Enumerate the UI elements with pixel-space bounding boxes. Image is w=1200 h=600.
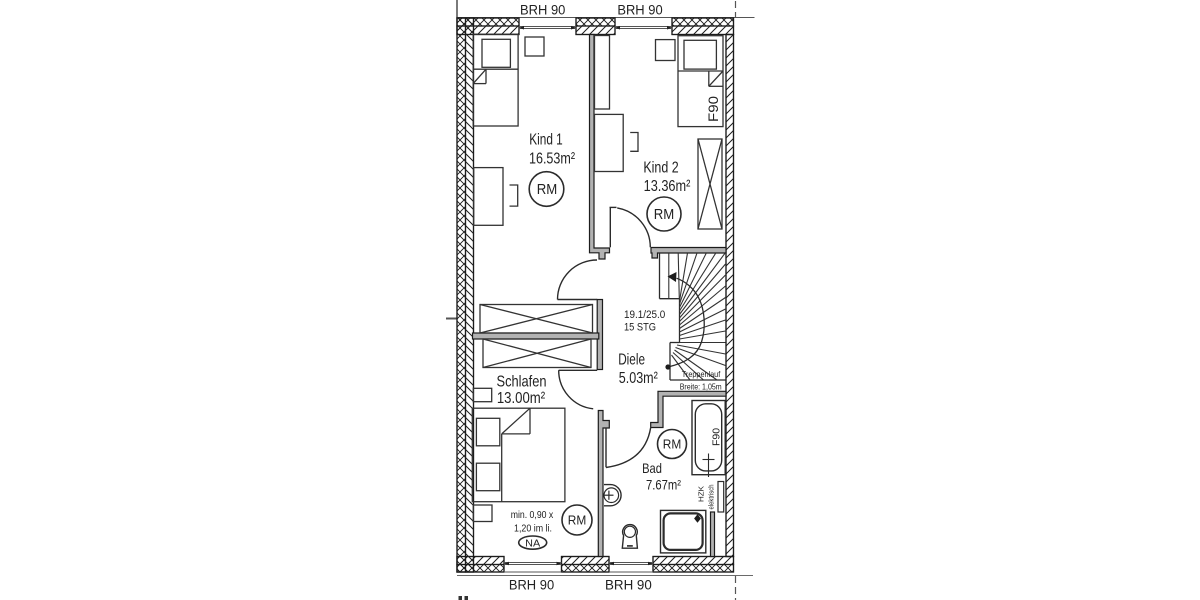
- svg-text:NA: NA: [525, 537, 540, 549]
- svg-text:19.1/25.0: 19.1/25.0: [624, 309, 665, 321]
- svg-text:BRH 90: BRH 90: [605, 578, 652, 593]
- svg-text:15 STG: 15 STG: [624, 322, 656, 334]
- svg-text:RM: RM: [654, 207, 675, 223]
- svg-text:13.00m²: 13.00m²: [497, 390, 546, 407]
- svg-text:13.36m²: 13.36m²: [644, 178, 691, 195]
- svg-text:5.03m²: 5.03m²: [619, 370, 659, 387]
- svg-text:Kind 2: Kind 2: [643, 159, 678, 176]
- svg-text:16.53m²: 16.53m²: [529, 150, 576, 167]
- svg-text:RM: RM: [568, 513, 587, 528]
- svg-text:BRH 90: BRH 90: [617, 2, 662, 17]
- svg-text:RM: RM: [663, 437, 682, 452]
- svg-text:1,20 im li.: 1,20 im li.: [514, 523, 552, 534]
- svg-text:Breite: 1,05m: Breite: 1,05m: [680, 382, 722, 392]
- svg-text:Kind 1: Kind 1: [529, 132, 563, 149]
- svg-text:min. 0,90 x: min. 0,90 x: [511, 510, 554, 521]
- svg-text:Treppenlauf: Treppenlauf: [682, 369, 721, 379]
- svg-text:BRH 90: BRH 90: [520, 2, 565, 17]
- svg-text:Diele: Diele: [618, 351, 645, 368]
- svg-text:BRH 90: BRH 90: [509, 578, 554, 593]
- svg-text:7.67m²: 7.67m²: [646, 477, 681, 493]
- svg-text:RM: RM: [537, 182, 558, 198]
- svg-text:F90: F90: [705, 96, 721, 122]
- svg-text:Schlafen: Schlafen: [497, 374, 547, 391]
- svg-text:HZK: HZK: [699, 486, 706, 502]
- svg-text:Bad: Bad: [642, 460, 662, 476]
- svg-text:F90: F90: [711, 428, 723, 446]
- svg-text:elektrisch: elektrisch: [709, 484, 716, 509]
